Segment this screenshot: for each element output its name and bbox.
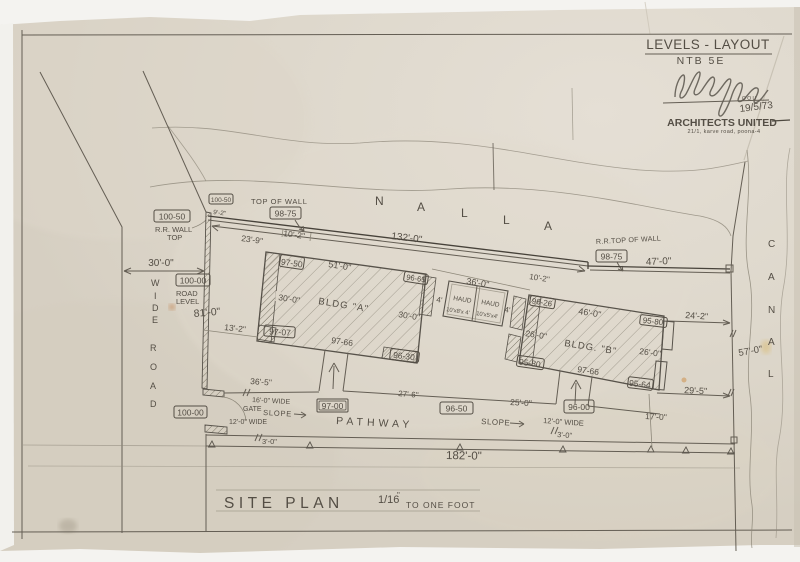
svg-text:N: N bbox=[768, 305, 775, 316]
svg-text:100-00: 100-00 bbox=[177, 408, 204, 418]
svg-text:96-00: 96-00 bbox=[568, 402, 590, 412]
svg-text:L: L bbox=[461, 206, 468, 220]
svg-text:182'-0": 182'-0" bbox=[446, 450, 482, 463]
svg-text:LEVELS - LAYOUT: LEVELS - LAYOUT bbox=[646, 37, 770, 52]
svg-text:": " bbox=[397, 491, 400, 500]
svg-text:GATE: GATE bbox=[243, 406, 262, 413]
svg-text:D: D bbox=[150, 399, 157, 409]
svg-text:D: D bbox=[152, 303, 159, 313]
svg-text:NTB 5E: NTB 5E bbox=[677, 55, 726, 67]
svg-text:ARCHITECTS UNITED: ARCHITECTS UNITED bbox=[667, 117, 777, 129]
svg-text:L: L bbox=[768, 369, 774, 380]
svg-text:30'-0": 30'-0" bbox=[148, 258, 174, 269]
svg-text:29'-5": 29'-5" bbox=[684, 385, 707, 396]
svg-text:I: I bbox=[154, 291, 157, 301]
svg-text:21/1, karve road, poona-4: 21/1, karve road, poona-4 bbox=[688, 129, 761, 135]
svg-text:L: L bbox=[503, 213, 510, 227]
svg-text:12'-0" WIDE: 12'-0" WIDE bbox=[229, 419, 267, 426]
svg-text:A: A bbox=[150, 381, 156, 391]
svg-text:36'-5": 36'-5" bbox=[250, 376, 272, 387]
svg-text:C: C bbox=[768, 239, 775, 250]
svg-text:TOP: TOP bbox=[167, 233, 182, 242]
svg-text:97-00: 97-00 bbox=[322, 401, 344, 411]
svg-text:SLOPE: SLOPE bbox=[263, 408, 292, 419]
svg-text:A: A bbox=[417, 200, 425, 214]
svg-text:LEVEL: LEVEL bbox=[176, 297, 199, 306]
svg-text:47'-0": 47'-0" bbox=[646, 256, 672, 268]
svg-text:97-07: 97-07 bbox=[269, 326, 292, 338]
svg-text:SLOPE: SLOPE bbox=[481, 417, 511, 428]
svg-text:N: N bbox=[375, 194, 384, 208]
svg-text:100-50: 100-50 bbox=[159, 212, 186, 222]
svg-text:O: O bbox=[150, 362, 157, 372]
svg-text:W: W bbox=[151, 278, 160, 288]
svg-text:100-50: 100-50 bbox=[211, 197, 232, 204]
svg-text:O O U: O O U bbox=[742, 96, 757, 102]
svg-text:TO ONE FOOT: TO ONE FOOT bbox=[406, 500, 475, 510]
svg-text:100-00: 100-00 bbox=[180, 276, 207, 286]
svg-text:3'-0": 3'-0" bbox=[557, 430, 573, 440]
svg-text:A: A bbox=[768, 272, 775, 283]
svg-text:98-75: 98-75 bbox=[275, 209, 297, 219]
svg-text:A: A bbox=[544, 219, 552, 233]
svg-text:A: A bbox=[768, 337, 775, 348]
svg-text:TOP OF WALL: TOP OF WALL bbox=[251, 197, 307, 206]
svg-text:24'-2": 24'-2" bbox=[685, 310, 709, 322]
svg-text:98-75: 98-75 bbox=[601, 252, 623, 262]
svg-text:E: E bbox=[152, 315, 158, 325]
svg-text:96-50: 96-50 bbox=[446, 404, 468, 414]
svg-text:R: R bbox=[150, 343, 157, 353]
svg-text:SITE PLAN: SITE PLAN bbox=[224, 495, 344, 512]
svg-text:3'-0": 3'-0" bbox=[262, 437, 277, 446]
